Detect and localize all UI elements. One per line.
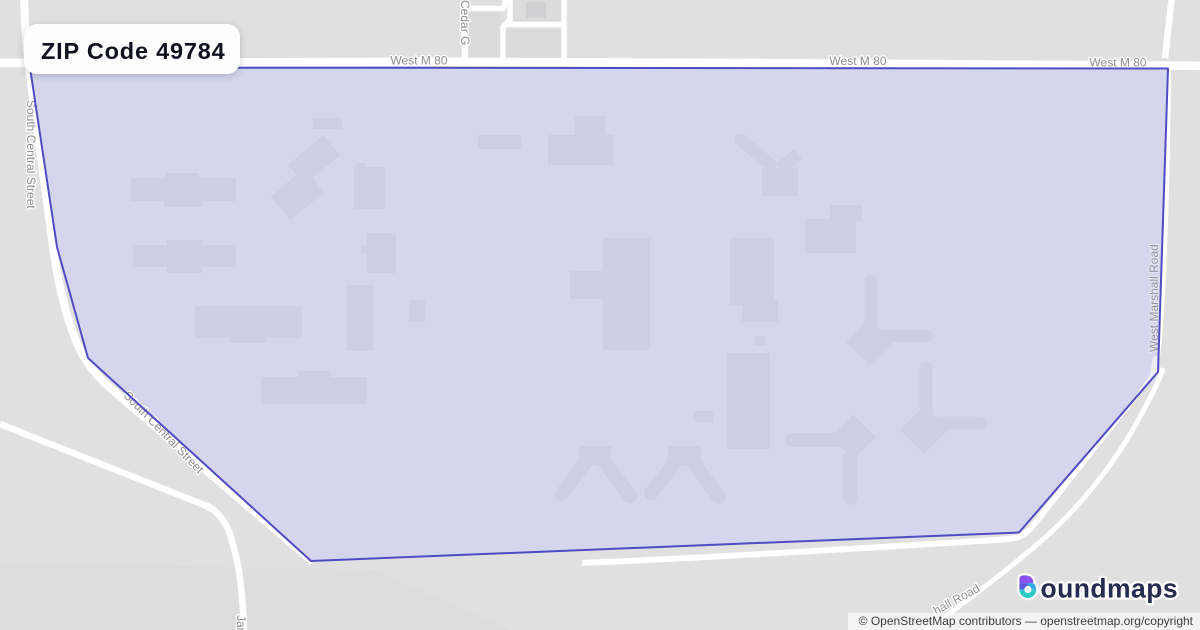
svg-text:oundmaps: oundmaps bbox=[1041, 574, 1179, 604]
svg-text:Cedar G: Cedar G bbox=[458, 0, 472, 45]
svg-text:South Central Street: South Central Street bbox=[24, 100, 38, 209]
svg-text:Jam: Jam bbox=[234, 615, 248, 630]
svg-text:West M 80: West M 80 bbox=[829, 54, 886, 68]
svg-text:West M 80: West M 80 bbox=[390, 53, 447, 67]
svg-text:West M 80: West M 80 bbox=[1089, 55, 1146, 69]
